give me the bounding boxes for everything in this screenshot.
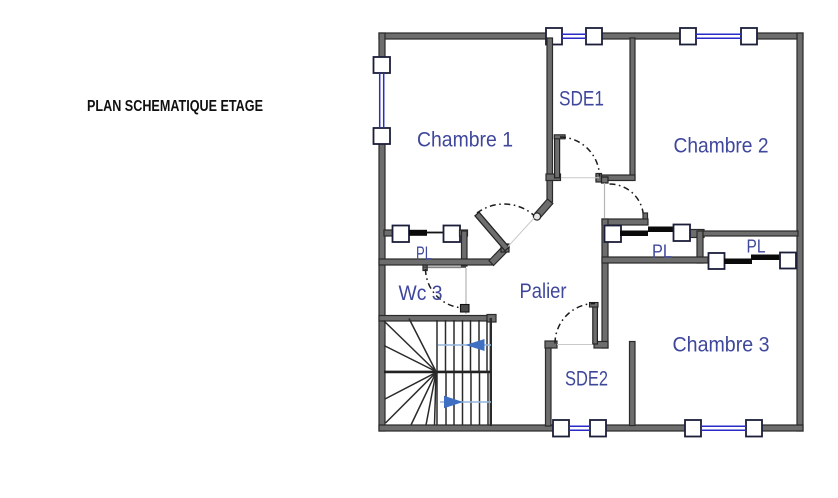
svg-text:Wc 3: Wc 3	[399, 282, 443, 305]
svg-text:Palier: Palier	[520, 280, 567, 303]
svg-text:PL: PL	[652, 241, 672, 261]
svg-text:Chambre 2: Chambre 2	[674, 135, 769, 158]
svg-text:PLAN SCHEMATIQUE ETAGE: PLAN SCHEMATIQUE ETAGE	[87, 98, 263, 115]
svg-text:Chambre 1: Chambre 1	[417, 129, 513, 152]
svg-text:Chambre 3: Chambre 3	[673, 334, 770, 357]
svg-text:PL: PL	[747, 236, 766, 256]
svg-text:SDE1: SDE1	[559, 87, 604, 110]
svg-text:PL: PL	[416, 244, 432, 264]
svg-text:SDE2: SDE2	[565, 368, 608, 391]
